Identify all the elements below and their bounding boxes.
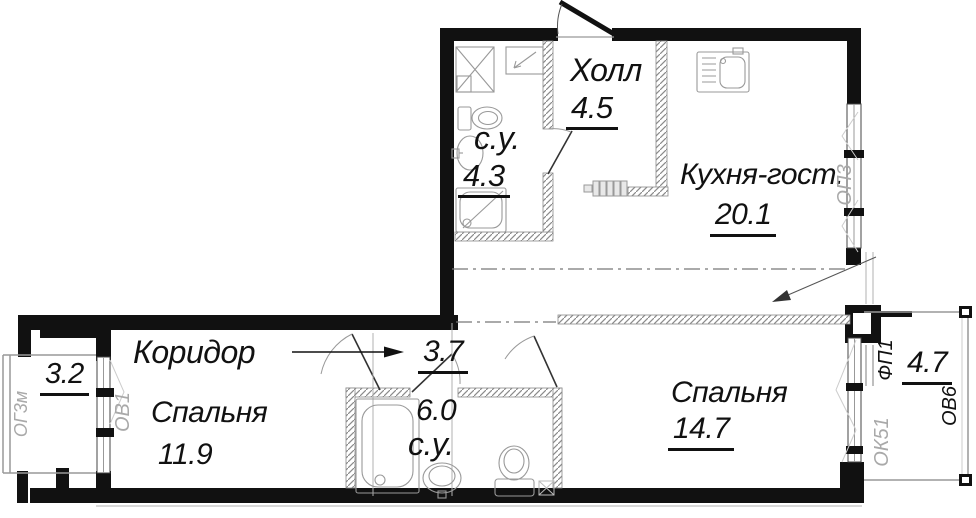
floor-plan: Холл 4.5 с.у. 4.3 Кухня-гост. 20.1 Корид… xyxy=(0,0,976,518)
room-label-bathroom-top: с.у. xyxy=(474,122,520,154)
mirror-cabinet-icon xyxy=(506,47,543,74)
entrance-door xyxy=(556,2,614,37)
room-label-corridor: Коридор xyxy=(133,336,255,368)
room-label-bedroom-right: Спальня xyxy=(671,378,787,408)
balcony-entry-arrow xyxy=(772,257,876,302)
shower-cabin-icon xyxy=(456,47,494,92)
room-label-hall: Холл xyxy=(570,54,642,86)
corridor-arrow xyxy=(292,347,404,358)
room-area-bedroom-left: 11.9 xyxy=(158,440,212,470)
window-tag-ok51: ОК51 xyxy=(872,417,892,467)
room-area-corridor: 3.7 xyxy=(418,337,468,374)
window-ok51 xyxy=(836,338,863,462)
room-area-hall: 4.5 xyxy=(566,92,618,130)
room-area-bathroom-bottom: 6.0 xyxy=(416,396,456,426)
bedroom-right-door xyxy=(505,336,557,387)
radiator-icon xyxy=(584,181,627,196)
room-area-loggia-left: 3.2 xyxy=(40,360,89,396)
room-area-kitchen-living: 20.1 xyxy=(710,200,776,237)
window-tag-og3m: ОГ3м xyxy=(12,391,30,437)
window-tag-ov6: ОВ6 xyxy=(940,386,960,426)
room-area-bathroom-top: 4.3 xyxy=(458,160,510,198)
window-tag-op3: ОП3 xyxy=(835,164,855,205)
room-area-bedroom-right: 14.7 xyxy=(668,414,734,451)
floor-plan-linework xyxy=(0,0,976,518)
bathroom-top-door xyxy=(548,129,572,174)
room-label-bathroom-bottom: с.у. xyxy=(408,428,454,460)
room-label-kitchen-living: Кухня-гост. xyxy=(680,160,844,190)
window-tag-fp1: ФП1 xyxy=(876,339,896,381)
exterior-walls xyxy=(17,28,912,503)
room-area-loggia-right: 4.7 xyxy=(902,348,952,385)
bedroom-left-door xyxy=(321,334,380,390)
room-label-bedroom-left: Спальня xyxy=(151,398,267,428)
kitchen-sink-icon xyxy=(697,48,749,92)
window-tag-ov1: ОВ1 xyxy=(113,392,133,432)
